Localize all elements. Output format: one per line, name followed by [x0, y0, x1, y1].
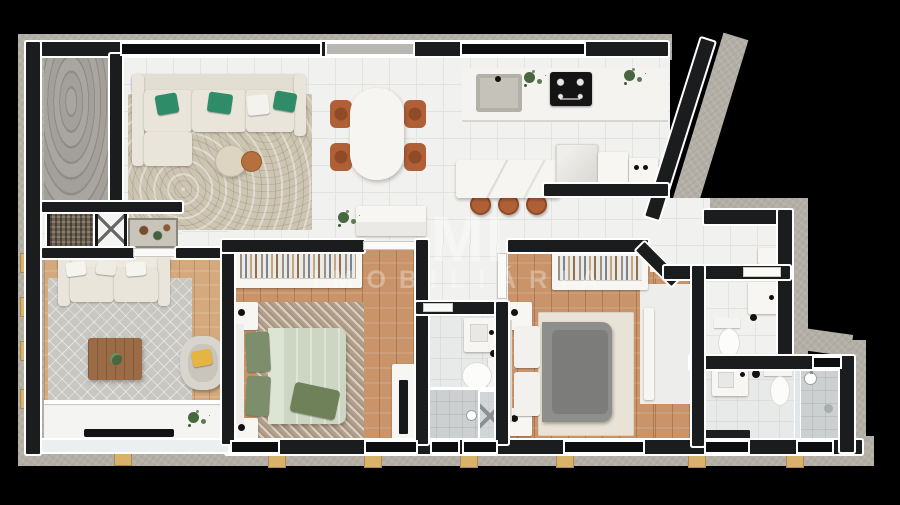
watermark-label: IMOBILIÁRIA — [313, 266, 612, 295]
watermark: MI IMOBILIÁRIA — [0, 0, 900, 505]
watermark-logo: MI — [430, 202, 505, 276]
floorplan-render: MI IMOBILIÁRIA — [0, 0, 900, 505]
